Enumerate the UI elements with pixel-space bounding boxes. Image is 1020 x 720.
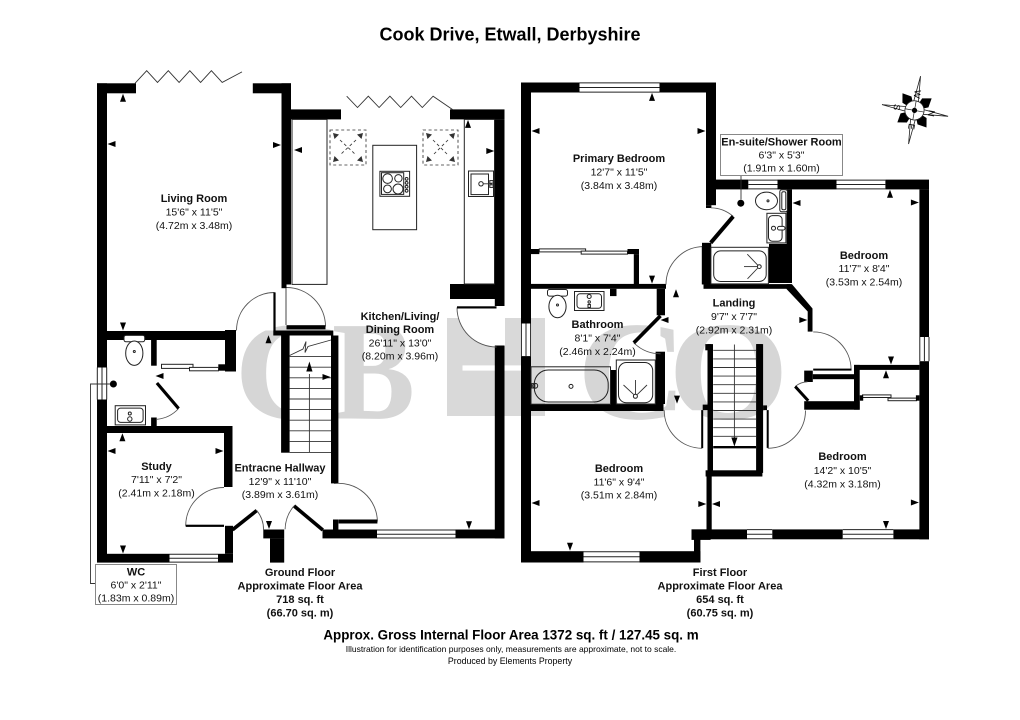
svg-text:12'9" x 11'10": 12'9" x 11'10" <box>249 476 312 488</box>
svg-text:12'7" x 11'5": 12'7" x 11'5" <box>591 167 648 179</box>
svg-text:First Floor: First Floor <box>693 567 748 579</box>
svg-text:(4.72m x 3.48m): (4.72m x 3.48m) <box>156 220 232 232</box>
svg-text:Approximate Floor Area: Approximate Floor Area <box>658 581 784 593</box>
svg-text:Bedroom: Bedroom <box>818 451 867 463</box>
svg-text:En-suite/Shower Room: En-suite/Shower Room <box>721 137 842 149</box>
svg-text:Landing: Landing <box>713 298 756 310</box>
svg-text:718 sq. ft: 718 sq. ft <box>276 594 324 606</box>
svg-text:9'7" x 7'7": 9'7" x 7'7" <box>711 311 757 323</box>
svg-text:(2.92m x 2.31m): (2.92m x 2.31m) <box>696 325 772 337</box>
svg-text:(66.70 sq. m): (66.70 sq. m) <box>267 608 334 620</box>
svg-text:(3.84m x 3.48m): (3.84m x 3.48m) <box>581 180 657 192</box>
svg-text:Bathroom: Bathroom <box>572 319 624 331</box>
svg-text:26'11" x 13'0": 26'11" x 13'0" <box>369 338 432 350</box>
svg-text:Produced by Elements Property: Produced by Elements Property <box>448 656 573 666</box>
svg-text:(1.83m x 0.89m): (1.83m x 0.89m) <box>98 593 174 605</box>
svg-text:(2.46m x 2.24m): (2.46m x 2.24m) <box>559 346 635 358</box>
svg-text:Cook Drive, Etwall, Derbyshire: Cook Drive, Etwall, Derbyshire <box>379 25 640 45</box>
svg-text:Illustration for identificatio: Illustration for identification purposes… <box>346 644 677 654</box>
svg-text:Living Room: Living Room <box>161 193 228 205</box>
svg-text:Study: Study <box>141 461 172 473</box>
svg-text:(1.91m x 1.60m): (1.91m x 1.60m) <box>743 163 819 175</box>
svg-text:6'0" x 2'11": 6'0" x 2'11" <box>111 580 162 592</box>
svg-text:Dining Room: Dining Room <box>366 324 435 336</box>
svg-text:Approximate Floor Area: Approximate Floor Area <box>238 581 364 593</box>
svg-text:7'11" x 7'2": 7'11" x 7'2" <box>131 474 182 486</box>
svg-text:(8.20m x 3.96m): (8.20m x 3.96m) <box>362 351 438 363</box>
svg-text:(3.89m x 3.61m): (3.89m x 3.61m) <box>242 489 318 501</box>
svg-text:Approx. Gross Internal Floor A: Approx. Gross Internal Floor Area 1372 s… <box>323 628 698 643</box>
svg-text:(3.53m x 2.54m): (3.53m x 2.54m) <box>826 277 902 289</box>
svg-text:654 sq. ft: 654 sq. ft <box>696 594 744 606</box>
svg-text:11'7" x 8'4": 11'7" x 8'4" <box>839 263 890 275</box>
svg-text:Entracne Hallway: Entracne Hallway <box>234 463 326 475</box>
svg-text:(2.41m x 2.18m): (2.41m x 2.18m) <box>118 488 194 500</box>
svg-text:6'3" x 5'3": 6'3" x 5'3" <box>759 150 805 162</box>
svg-text:Bedroom: Bedroom <box>595 463 644 475</box>
svg-text:(60.75 sq. m): (60.75 sq. m) <box>687 608 754 620</box>
svg-text:Bedroom: Bedroom <box>840 250 889 262</box>
svg-text:(3.51m x 2.84m): (3.51m x 2.84m) <box>581 490 657 502</box>
svg-text:WC: WC <box>127 567 145 579</box>
svg-text:14'2" x 10'5": 14'2" x 10'5" <box>814 465 872 477</box>
svg-text:11'6" x 9'4": 11'6" x 9'4" <box>594 477 645 489</box>
svg-text:(4.32m x 3.18m): (4.32m x 3.18m) <box>804 479 880 491</box>
svg-text:Primary Bedroom: Primary Bedroom <box>573 153 666 165</box>
svg-text:8'1" x 7'4": 8'1" x 7'4" <box>575 333 621 345</box>
svg-text:15'6" x 11'5": 15'6" x 11'5" <box>166 207 223 219</box>
svg-text:Kitchen/Living/: Kitchen/Living/ <box>361 311 440 323</box>
svg-text:Ground Floor: Ground Floor <box>265 567 336 579</box>
